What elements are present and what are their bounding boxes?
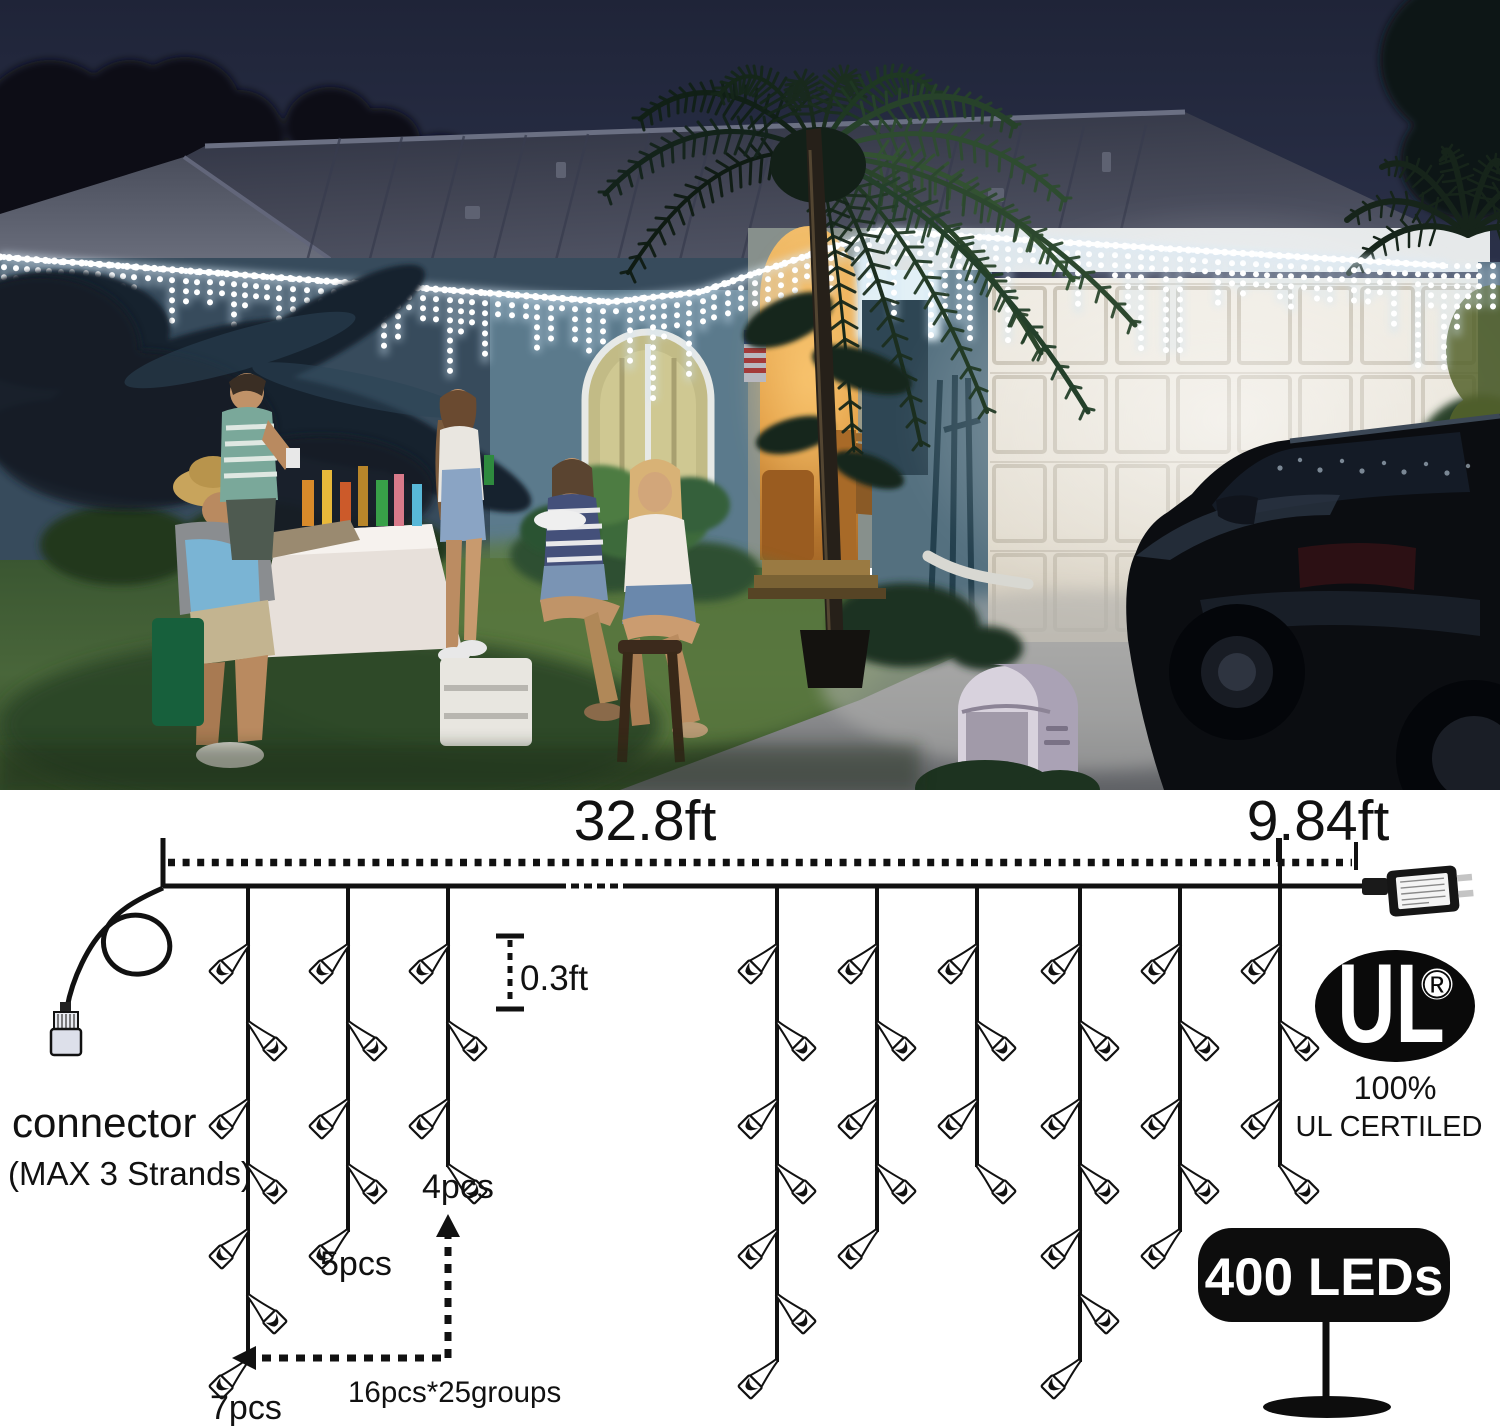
svg-text:16pcs*25groups: 16pcs*25groups bbox=[348, 1376, 561, 1409]
svg-text:7pcs: 7pcs bbox=[210, 1389, 282, 1427]
svg-text:32.8ft: 32.8ft bbox=[574, 790, 717, 853]
svg-text:®: ® bbox=[1422, 963, 1451, 1007]
svg-text:5pcs: 5pcs bbox=[320, 1245, 392, 1283]
svg-text:UL CERTILED: UL CERTILED bbox=[1296, 1111, 1483, 1143]
svg-text:100%: 100% bbox=[1353, 1070, 1436, 1106]
svg-text:4pcs: 4pcs bbox=[422, 1168, 494, 1206]
svg-text:9.84ft: 9.84ft bbox=[1247, 790, 1390, 853]
svg-text:connector: connector bbox=[12, 1099, 196, 1146]
svg-text:(MAX 3 Strands): (MAX 3 Strands) bbox=[8, 1155, 252, 1192]
svg-text:0.3ft: 0.3ft bbox=[520, 959, 588, 998]
svg-text:400 LEDs: 400 LEDs bbox=[1205, 1248, 1444, 1307]
